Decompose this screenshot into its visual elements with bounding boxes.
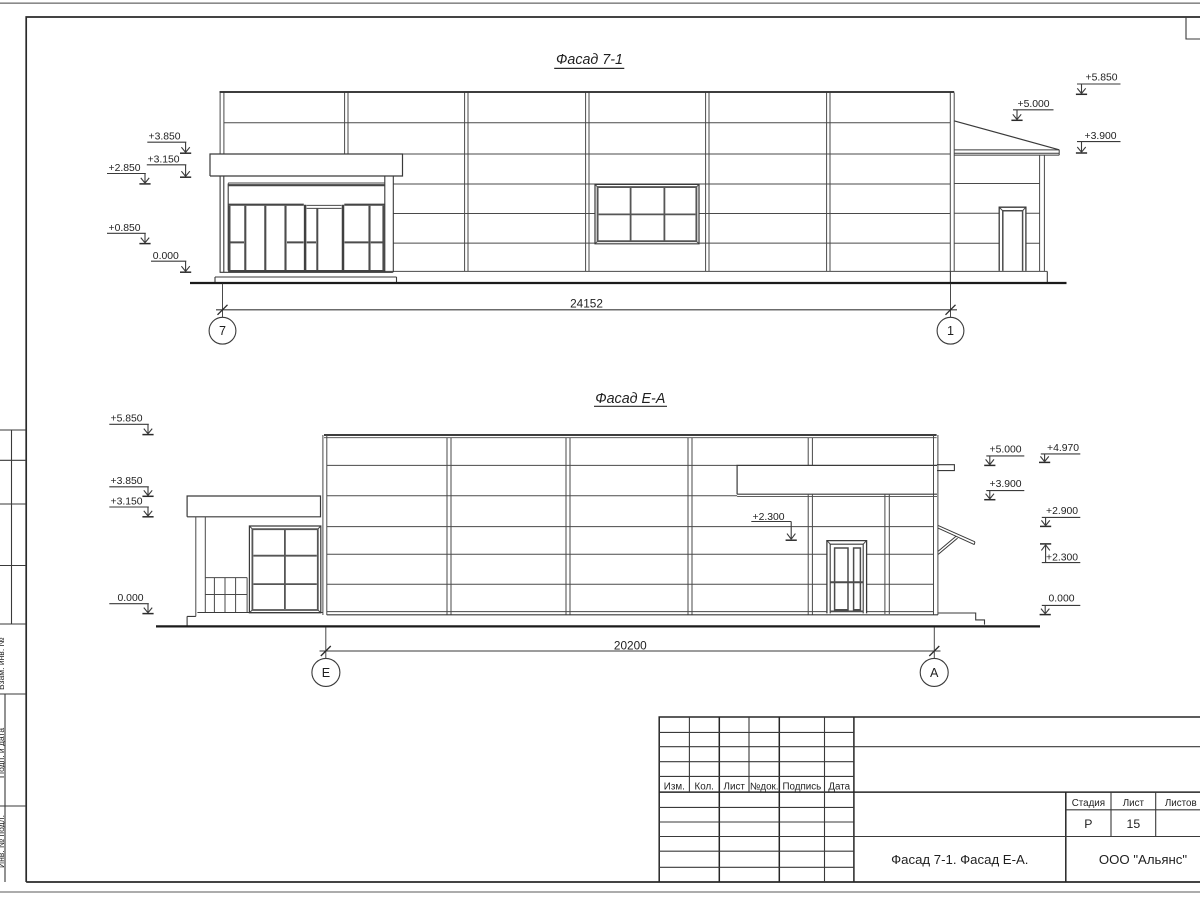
svg-text:Взам. инв. №: Взам. инв. №	[0, 637, 6, 690]
svg-text:Е: Е	[322, 666, 330, 680]
svg-text:№док.: №док.	[750, 781, 779, 792]
svg-text:Инв. № подл.: Инв. № подл.	[0, 815, 6, 868]
svg-text:0.000: 0.000	[153, 251, 179, 262]
svg-text:20200: 20200	[614, 638, 647, 652]
svg-text:+3.850: +3.850	[149, 132, 181, 143]
svg-text:Листов: Листов	[1165, 798, 1197, 809]
svg-text:Стадия: Стадия	[1072, 798, 1105, 809]
svg-text:0.000: 0.000	[118, 593, 144, 604]
svg-text:15: 15	[1127, 817, 1141, 831]
svg-text:Подпись: Подпись	[783, 781, 822, 792]
svg-text:А: А	[930, 666, 939, 680]
svg-text:Лист: Лист	[724, 781, 746, 792]
svg-text:+3.850: +3.850	[111, 476, 143, 487]
svg-text:Фасад 7-1: Фасад 7-1	[556, 52, 623, 68]
svg-text:Изм.: Изм.	[664, 781, 685, 792]
svg-text:+3.150: +3.150	[111, 497, 143, 508]
svg-text:Фасад 7-1. Фасад Е-А.: Фасад 7-1. Фасад Е-А.	[891, 852, 1028, 867]
svg-text:1: 1	[947, 324, 954, 338]
svg-text:ООО "Альянс": ООО "Альянс"	[1099, 852, 1187, 867]
svg-text:+3.150: +3.150	[148, 154, 180, 165]
svg-text:Фасад Е-А: Фасад Е-А	[595, 391, 665, 407]
svg-text:Подп. и дата: Подп. и дата	[0, 728, 6, 778]
svg-text:Лист: Лист	[1123, 798, 1145, 809]
svg-text:+4.970: +4.970	[1047, 443, 1079, 454]
svg-text:7: 7	[219, 324, 226, 338]
svg-text:0.000: 0.000	[1049, 594, 1075, 605]
svg-text:Кол.: Кол.	[695, 781, 714, 792]
svg-text:+5.000: +5.000	[1018, 99, 1050, 110]
svg-text:+2.300: +2.300	[1046, 552, 1078, 563]
svg-text:+0.850: +0.850	[109, 223, 141, 234]
svg-text:+5.850: +5.850	[1086, 72, 1118, 83]
svg-text:+3.900: +3.900	[1085, 131, 1117, 142]
svg-text:+2.850: +2.850	[109, 163, 141, 174]
svg-text:+5.000: +5.000	[990, 444, 1022, 455]
svg-text:+2.900: +2.900	[1046, 506, 1078, 517]
svg-text:+3.900: +3.900	[990, 479, 1022, 490]
svg-text:24152: 24152	[570, 297, 603, 311]
svg-text:Р: Р	[1084, 817, 1092, 831]
svg-text:Дата: Дата	[828, 781, 850, 792]
svg-text:+5.850: +5.850	[111, 414, 143, 425]
